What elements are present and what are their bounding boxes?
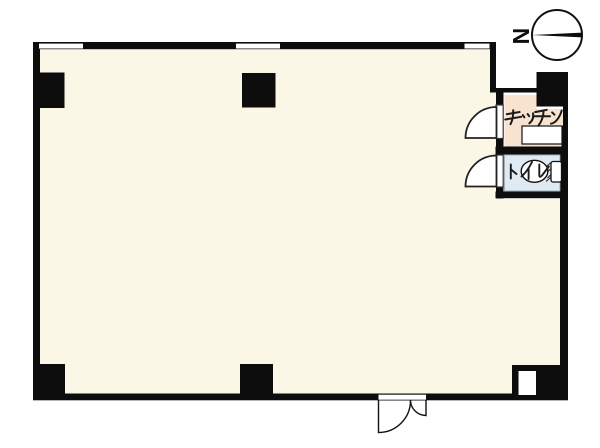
svg-text:N: N [508, 28, 534, 45]
